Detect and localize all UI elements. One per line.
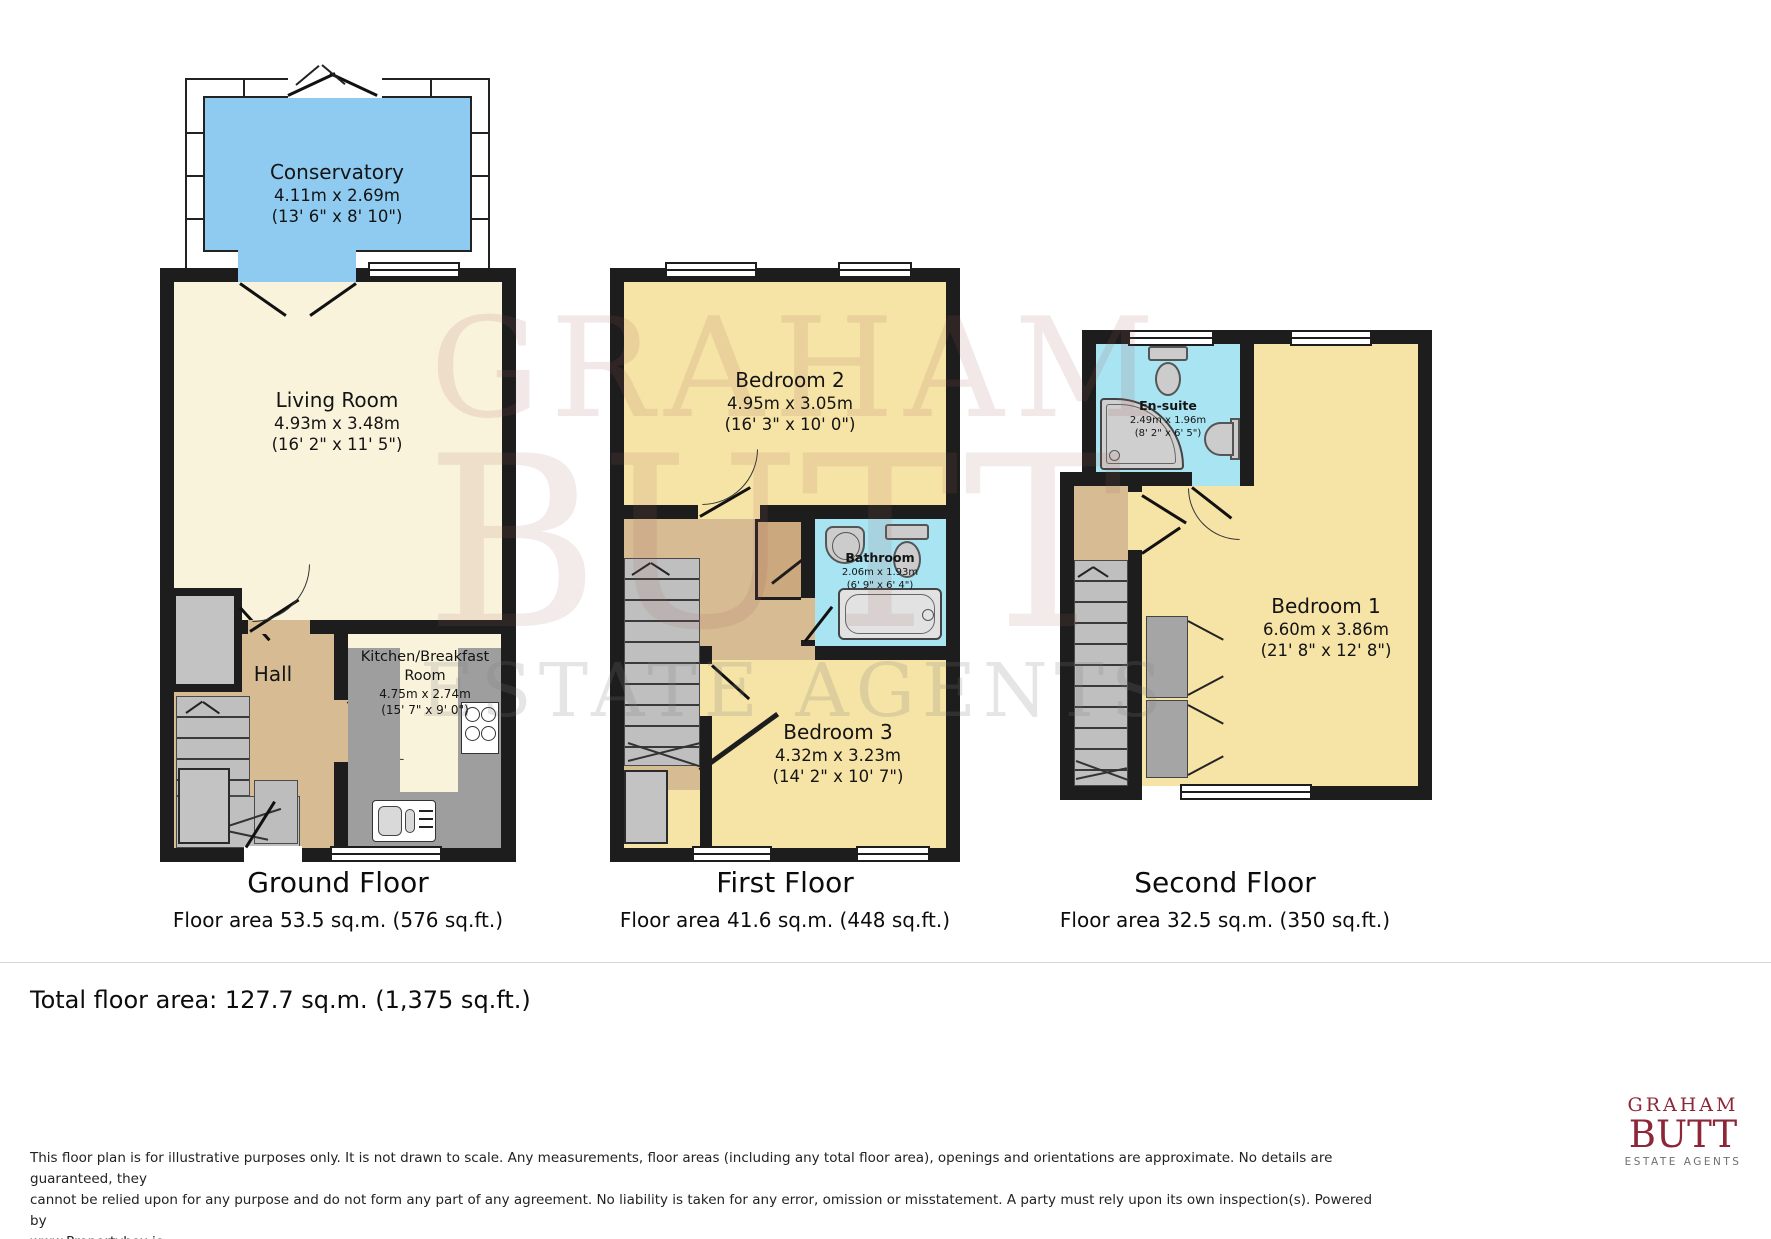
second-landing bbox=[1074, 486, 1128, 560]
room-dims-metric: 6.60m x 3.86m bbox=[1216, 619, 1436, 640]
toilet-cistern bbox=[885, 524, 929, 540]
sink-bowl-small bbox=[405, 809, 415, 833]
bath-drain bbox=[922, 609, 934, 621]
ground-floor-area: Floor area 53.5 sq.m. (576 sq.ft.) bbox=[138, 908, 538, 932]
conservatory-label: Conservatory 4.11m x 2.69m (13' 6" x 8' … bbox=[227, 160, 447, 227]
glazing-tick bbox=[430, 78, 432, 96]
room-dims-metric: 4.75m x 2.74m bbox=[342, 686, 508, 702]
room-name: Bedroom 1 bbox=[1216, 594, 1436, 619]
window bbox=[1290, 330, 1372, 346]
bedroom2-label: Bedroom 2 4.95m x 3.05m (16' 3" x 10' 0"… bbox=[680, 368, 900, 435]
glazing-tick bbox=[185, 132, 203, 134]
room-dims-imperial: (13' 6" x 8' 10") bbox=[227, 206, 447, 227]
disclaimer-line-2: cannot be relied upon for any purpose an… bbox=[30, 1190, 1390, 1232]
room-name: Bedroom 3 bbox=[728, 720, 948, 745]
room-dims-metric: 4.93m x 3.48m bbox=[227, 413, 447, 434]
window bbox=[692, 846, 772, 862]
logo-butt: BUTT bbox=[1608, 1116, 1758, 1154]
window bbox=[1180, 784, 1312, 800]
room-name: Living Room bbox=[227, 388, 447, 413]
room-dims-imperial: (21' 8" x 12' 8") bbox=[1216, 640, 1436, 661]
room-dims-metric: 4.11m x 2.69m bbox=[227, 185, 447, 206]
room-dims-metric: 2.49m x 1.96m bbox=[1108, 414, 1228, 427]
room-bedroom1-main bbox=[1254, 344, 1418, 786]
second-floor-area: Floor area 32.5 sq.m. (350 sq.ft.) bbox=[1025, 908, 1425, 932]
porch bbox=[178, 768, 230, 844]
ensuite-label: En-suite 2.49m x 1.96m (8' 2" x 6' 5") bbox=[1108, 398, 1228, 440]
logo-estate-agents: ESTATE AGENTS bbox=[1608, 1156, 1758, 1168]
bathroom-label: Bathroom 2.06m x 1.93m (6' 9" x 6' 4") bbox=[820, 550, 940, 592]
kitchen-label: Kitchen/Breakfast Room 4.75m x 2.74m (15… bbox=[342, 648, 508, 718]
first-floor-title: First Floor bbox=[608, 866, 962, 899]
ground-floor-title: Ground Floor bbox=[158, 866, 518, 899]
sink-bowl bbox=[378, 806, 402, 836]
room-name: En-suite bbox=[1108, 398, 1228, 414]
room-dims-imperial: (6' 9" x 6' 4") bbox=[820, 579, 940, 592]
window bbox=[368, 262, 460, 278]
living-room-label: Living Room 4.93m x 3.48m (16' 2" x 11' … bbox=[227, 388, 447, 455]
room-name: Bedroom 2 bbox=[680, 368, 900, 393]
room-dims-imperial: (8' 2" x 6' 5") bbox=[1108, 427, 1228, 440]
first-floor-area: Floor area 41.6 sq.m. (448 sq.ft.) bbox=[588, 908, 982, 932]
room-name: Bathroom bbox=[820, 550, 940, 566]
bedroom3-closet bbox=[624, 770, 668, 844]
bedroom3-door-gap bbox=[700, 664, 712, 716]
hob-burner bbox=[481, 726, 496, 741]
window bbox=[1128, 330, 1214, 346]
glazing-tick bbox=[472, 175, 490, 177]
room-dims-imperial: (15' 7" x 9' 0") bbox=[342, 702, 508, 718]
first-staircase bbox=[624, 558, 700, 766]
wardrobe bbox=[1146, 616, 1188, 698]
bedroom1-label: Bedroom 1 6.60m x 3.86m (21' 8" x 12' 8"… bbox=[1216, 594, 1436, 661]
glazing-tick bbox=[185, 218, 203, 220]
drainer-line bbox=[419, 818, 433, 820]
room-dims-imperial: (16' 2" x 11' 5") bbox=[227, 434, 447, 455]
room-dims-imperial: (16' 3" x 10' 0") bbox=[680, 414, 900, 435]
landing-door-gap bbox=[1128, 492, 1142, 550]
window bbox=[838, 262, 912, 278]
hall-label: Hall bbox=[240, 662, 306, 687]
room-dims-metric: 2.06m x 1.93m bbox=[820, 566, 940, 579]
room-name: Hall bbox=[240, 662, 306, 687]
ensuite-door-gap bbox=[1192, 472, 1240, 486]
drainer-line bbox=[419, 810, 433, 812]
room-dims-imperial: (14' 2" x 10' 7") bbox=[728, 766, 948, 787]
front-door-gap bbox=[244, 846, 302, 862]
room-name: Conservatory bbox=[227, 160, 447, 185]
toilet-bowl bbox=[1155, 362, 1181, 396]
glazing-tick bbox=[185, 175, 203, 177]
disclaimer: This floor plan is for illustrative purp… bbox=[30, 1148, 1390, 1239]
toilet-cistern bbox=[1148, 346, 1188, 361]
second-staircase bbox=[1074, 560, 1128, 786]
hob-burner bbox=[465, 726, 480, 741]
window bbox=[665, 262, 757, 278]
store-room bbox=[176, 596, 234, 684]
disclaimer-line-3: www.Propertybox.io bbox=[30, 1232, 1390, 1239]
shower-drain bbox=[1109, 450, 1120, 461]
agency-logo: GRAHAM BUTT ESTATE AGENTS bbox=[1608, 1094, 1758, 1168]
room-dims-metric: 4.32m x 3.23m bbox=[728, 745, 948, 766]
disclaimer-line-1: This floor plan is for illustrative purp… bbox=[30, 1148, 1390, 1190]
window bbox=[856, 846, 930, 862]
winder-steps-2 bbox=[254, 780, 298, 844]
window bbox=[330, 846, 442, 862]
second-floor-title: Second Floor bbox=[1035, 866, 1415, 899]
floorplan-page: GRAHAM BUTT ESTATE AGENTS bbox=[0, 0, 1771, 1239]
glazing-tick bbox=[243, 78, 245, 96]
glazing-tick bbox=[472, 132, 490, 134]
glazing-tick bbox=[472, 218, 490, 220]
wardrobe bbox=[1146, 700, 1188, 778]
room-name: Kitchen/Breakfast Room bbox=[342, 648, 508, 686]
conservatory-living-opening bbox=[238, 250, 356, 282]
footer-divider bbox=[0, 962, 1771, 963]
total-floor-area: Total floor area: 127.7 sq.m. (1,375 sq.… bbox=[30, 986, 930, 1014]
drainer-line bbox=[419, 826, 433, 828]
room-dims-metric: 4.95m x 3.05m bbox=[680, 393, 900, 414]
bedroom3-label: Bedroom 3 4.32m x 3.23m (14' 2" x 10' 7"… bbox=[728, 720, 948, 787]
